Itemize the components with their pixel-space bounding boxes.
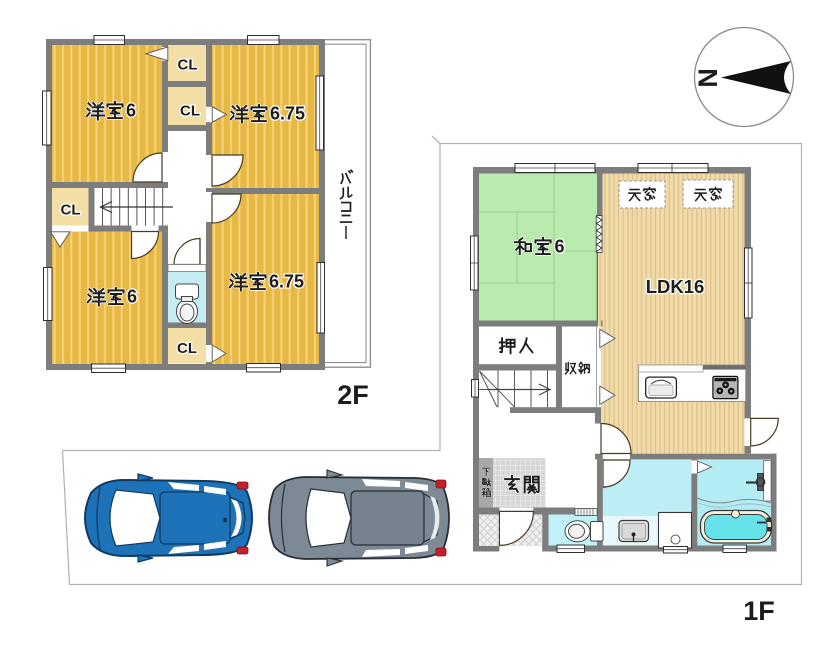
svg-text:LDK16: LDK16 — [646, 276, 705, 297]
svg-text:1F: 1F — [743, 596, 775, 626]
svg-text:2F: 2F — [337, 380, 369, 410]
svg-text:CL: CL — [61, 202, 81, 219]
svg-text:6: 6 — [127, 287, 137, 307]
svg-text:6.75: 6.75 — [270, 104, 305, 124]
svg-text:6: 6 — [555, 237, 565, 257]
svg-text:6: 6 — [126, 101, 136, 121]
svg-text:CL: CL — [178, 57, 198, 74]
svg-text:6.75: 6.75 — [269, 272, 304, 292]
svg-text:N: N — [693, 68, 723, 88]
svg-text:CL: CL — [180, 103, 200, 120]
svg-text:CL: CL — [177, 340, 197, 357]
